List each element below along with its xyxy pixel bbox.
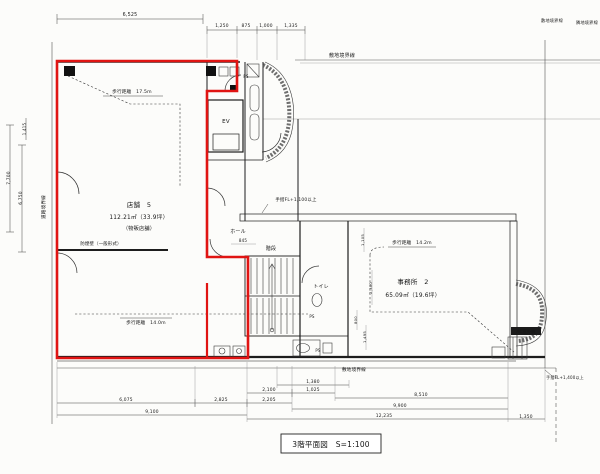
boundary-label-topright-2: 隣地境界線 xyxy=(576,19,599,26)
toilet-fixture xyxy=(312,294,322,307)
dim-int-2300: 2,300 xyxy=(368,282,373,294)
walk-distance-store-top: 歩行距離 17.5m xyxy=(112,88,152,95)
stairs-label: 階段 xyxy=(266,245,276,252)
ac-unit-label: AC室外機 xyxy=(516,328,536,335)
floor-plan-drawing: 3階平面図 S=1:100 6,5251,2508751,0001,335敷地境… xyxy=(0,0,600,474)
ps-label-mid: PS xyxy=(309,314,315,319)
store5-use: （物販店舗） xyxy=(123,224,155,232)
ps-label-top: PS xyxy=(243,74,249,79)
caption-text: 3階平面図 S=1:100 xyxy=(292,439,370,449)
dim-left-1415: 1,415 xyxy=(22,123,27,136)
dim-bot-12235: 12,235 xyxy=(376,413,393,419)
dim-top-1250: 1,250 xyxy=(215,23,229,29)
dim-bot-9900: 9,900 xyxy=(393,403,407,409)
dim-bot-1380: 1,380 xyxy=(306,379,320,385)
dim-bot-2205: 2,205 xyxy=(262,397,276,403)
office2-area: 65.09㎡（19.6坪） xyxy=(385,291,440,299)
dim-bot-9100: 9,100 xyxy=(145,409,159,415)
boundary-label-left: 道路境界線 xyxy=(40,195,47,219)
dim-bot-1350: 1,350 xyxy=(519,414,533,420)
hall-label: ホール xyxy=(230,229,246,235)
door-swings xyxy=(57,75,319,283)
boundary-label-topright-1: 敷地境界線 xyxy=(541,17,564,24)
handrail-note-mid: 手摺FL+1,100以上 xyxy=(275,196,317,203)
dim-top-6525: 6,525 xyxy=(123,12,138,18)
ps-label-low: PS xyxy=(315,348,321,353)
boundary-label-top: 敷地境界線 xyxy=(329,52,355,59)
curved-walls xyxy=(263,62,546,346)
walls xyxy=(57,62,545,361)
dim-top-1000: 1,000 xyxy=(259,23,273,29)
fixtures xyxy=(64,64,541,359)
caption-box: 3階平面図 S=1:100 xyxy=(281,434,381,453)
dim-hall-845: 845 xyxy=(239,238,247,243)
dim-int-1105: 1,105 xyxy=(360,234,365,246)
ev-label: EV xyxy=(222,119,230,125)
toilet-label: トイレ xyxy=(313,284,329,290)
dim-int-800: 800 xyxy=(353,316,358,324)
handrail-note-bottomright: 手摺FL+1,400以上 xyxy=(546,374,584,380)
walk-distance-office: 歩行距離 14.2m xyxy=(392,239,432,246)
corner-fixture xyxy=(64,66,75,76)
dim-int-1495: 1,495 xyxy=(362,331,367,343)
office2-name: 事務所 2 xyxy=(397,277,428,286)
dim-bot-6075: 6,075 xyxy=(119,397,133,403)
site-boundary-lines xyxy=(52,40,600,442)
dim-top-1335: 1,335 xyxy=(284,23,298,29)
store5-red-outline xyxy=(57,61,248,358)
smoke-barrier-note: 防煙壁（一般形式） xyxy=(80,240,121,247)
floor-plan-sheet: 3階平面図 S=1:100 6,5251,2508751,0001,335敷地境… xyxy=(0,0,600,474)
walk-distance-store-bottom: 歩行距離 14.0m xyxy=(126,319,166,326)
store5-area: 112.21㎡（33.9坪） xyxy=(109,213,168,221)
dim-left-6750: 6,750 xyxy=(18,191,24,205)
dim-bot-1025: 1,025 xyxy=(306,387,320,393)
dim-bot-2100: 2,100 xyxy=(262,387,276,393)
dim-top-875: 875 xyxy=(242,23,251,29)
dim-bot-8510: 8,510 xyxy=(414,392,428,398)
store5-name: 店舗 5 xyxy=(127,200,151,209)
dim-left-7700: 7,700 xyxy=(6,171,12,185)
boundary-label-bottom: 敷地境界線 xyxy=(342,366,366,373)
dim-bot-2825: 2,825 xyxy=(214,397,228,403)
